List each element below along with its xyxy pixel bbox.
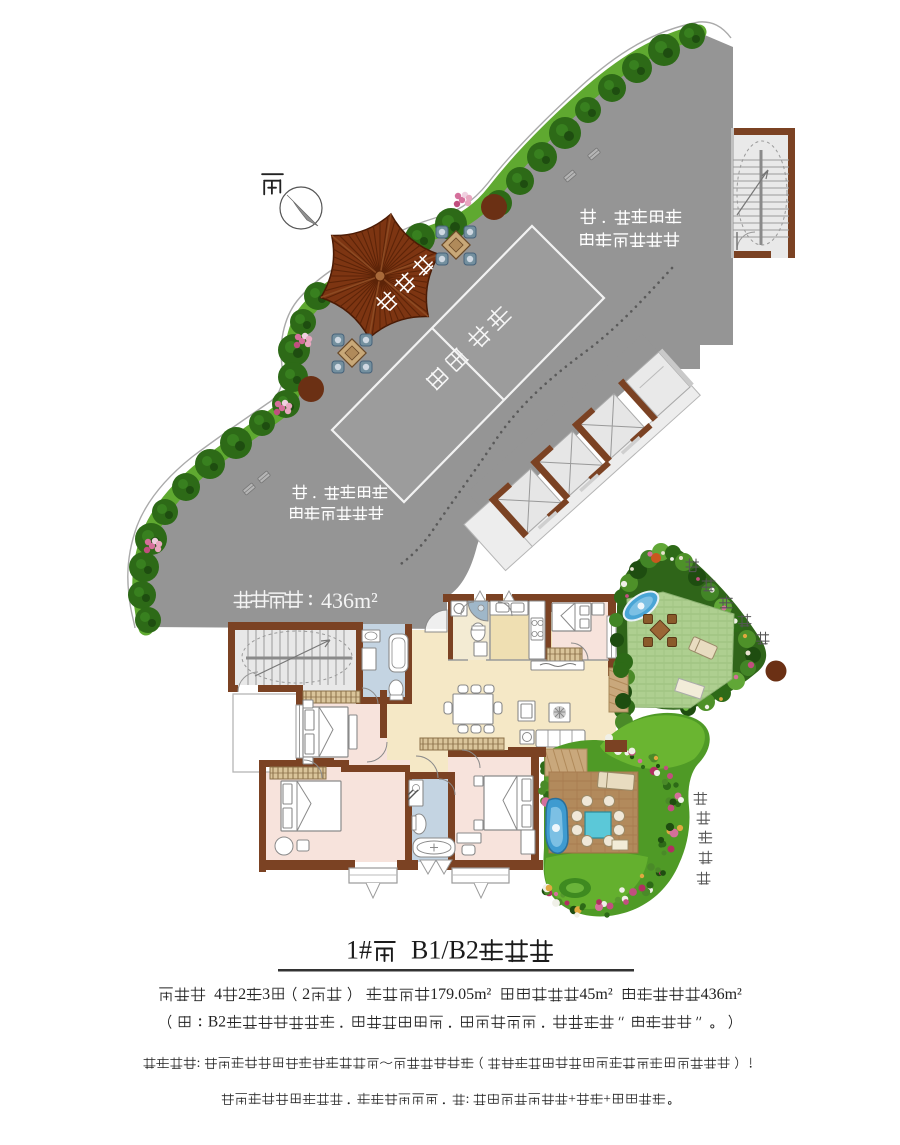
svg-text:+: + — [568, 1091, 576, 1106]
svg-text:4: 4 — [214, 986, 222, 1003]
svg-text:B2: B2 — [208, 1014, 226, 1031]
svg-text:B1/B2: B1/B2 — [411, 936, 479, 965]
svg-text:2: 2 — [302, 986, 310, 1003]
svg-text:436m²: 436m² — [701, 986, 742, 1003]
svg-text::: : — [466, 1091, 470, 1106]
svg-text:45m²: 45m² — [579, 986, 612, 1003]
svg-text:2: 2 — [238, 986, 246, 1003]
svg-text:179.05m²: 179.05m² — [430, 986, 491, 1003]
svg-text:1#: 1# — [346, 936, 372, 965]
svg-text:3: 3 — [262, 986, 270, 1003]
svg-text::: : — [197, 1055, 201, 1070]
svg-text:+: + — [603, 1091, 611, 1106]
svg-text:436m²: 436m² — [321, 588, 378, 613]
